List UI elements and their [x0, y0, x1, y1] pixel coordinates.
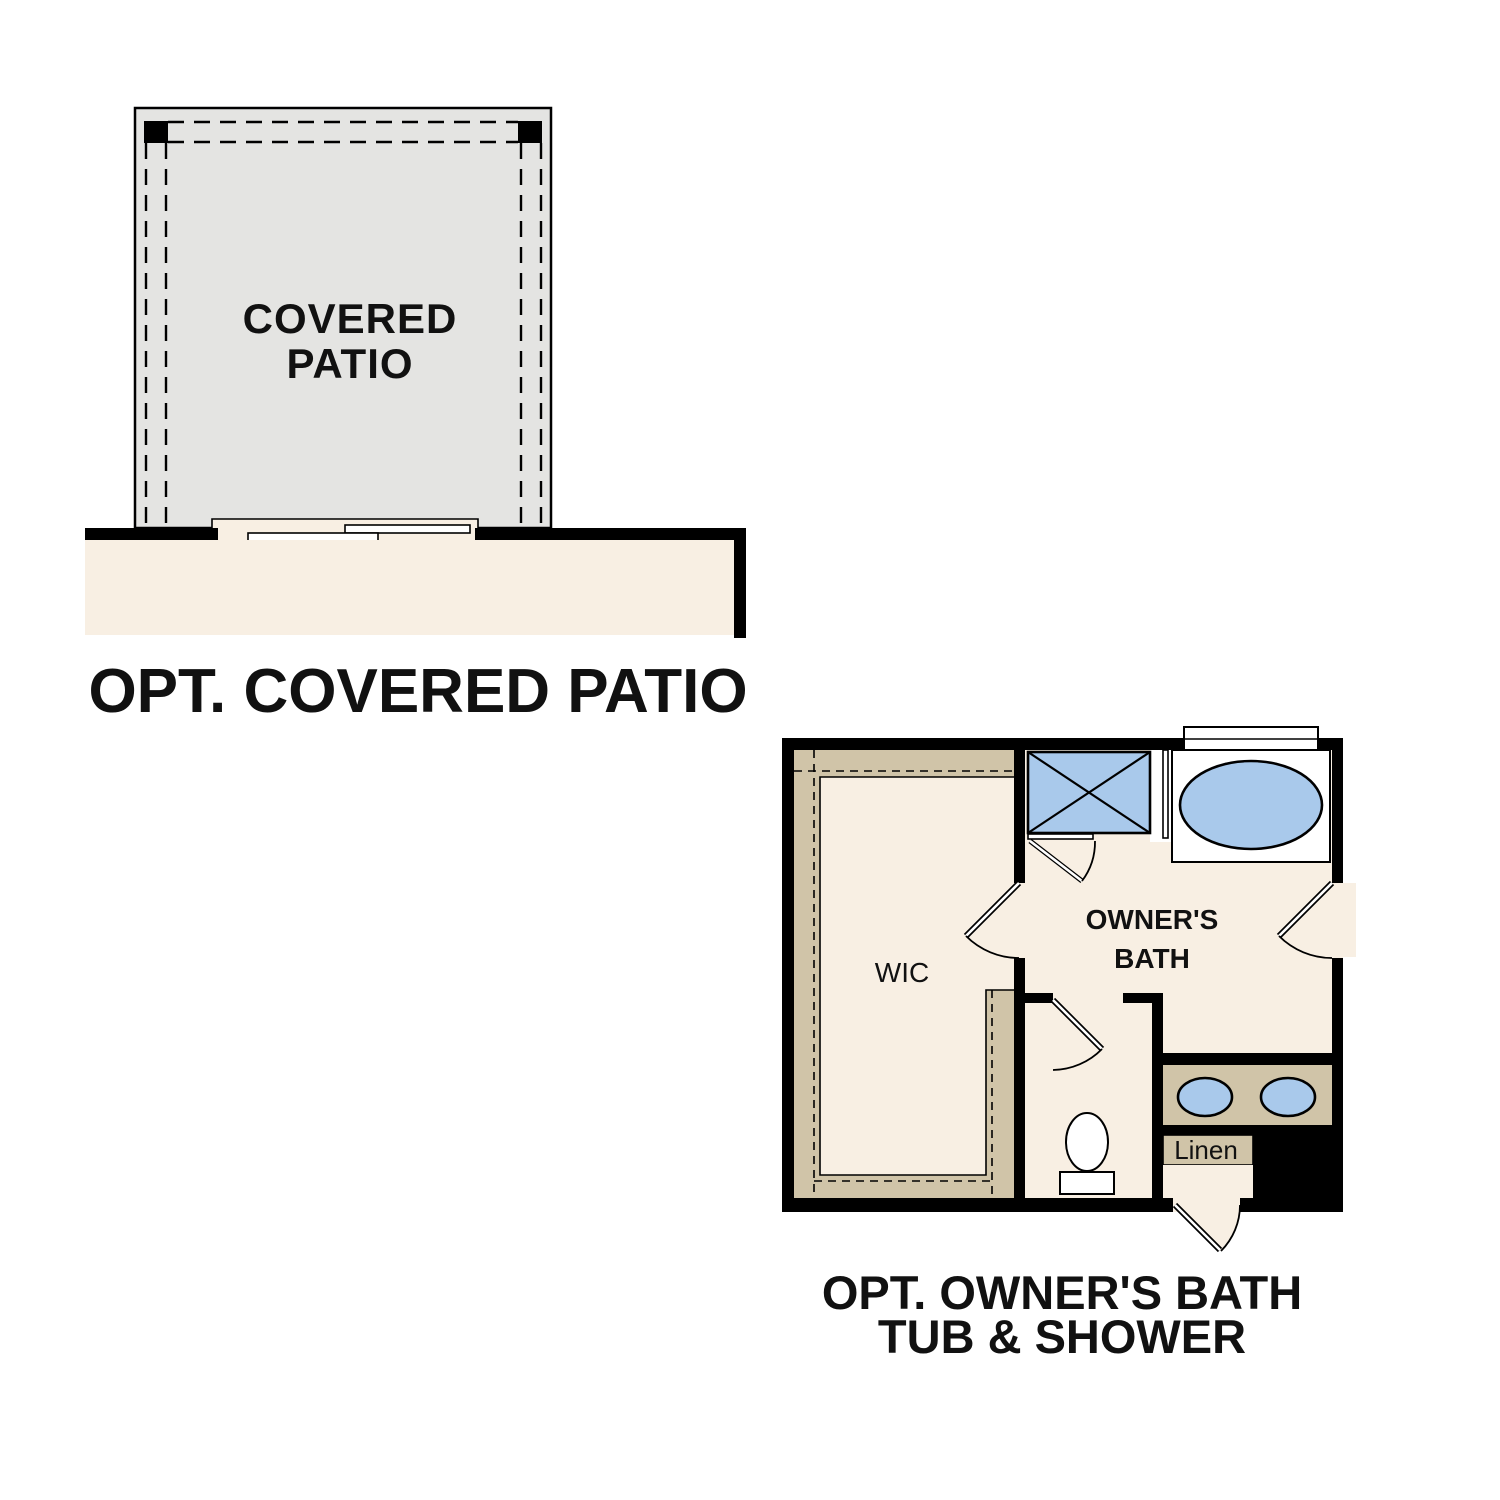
- wic-shelf-band-left: [794, 750, 820, 1198]
- linen-label: Linen: [1174, 1135, 1238, 1165]
- sliding-door-panel: [248, 533, 378, 541]
- patio-post: [518, 121, 542, 143]
- patio-room-label-line2: PATIO: [286, 340, 413, 387]
- bath-room-label-line1: OWNER'S: [1086, 904, 1219, 935]
- floorplan-canvas: COVERED PATIO OPT. COVERED PATIO: [0, 0, 1500, 1500]
- wic-shelf-band-bottom: [794, 1175, 1015, 1198]
- floorplan-sheet: COVERED PATIO OPT. COVERED PATIO: [0, 0, 1500, 1500]
- owners-bath-plan: WIC OWNER'S BATH Linen OPT. OWNER'S BATH…: [782, 727, 1356, 1363]
- wall-toilet-right: [1152, 993, 1163, 1198]
- wall-bottom: [782, 1198, 1173, 1212]
- wall-wic-bath-upper: [1014, 750, 1025, 883]
- wall-mass-bottom-right: [1253, 1135, 1343, 1212]
- wall-right-upper: [1332, 738, 1343, 883]
- toilet-tank: [1060, 1172, 1114, 1194]
- wall-toilet-top-left: [1025, 993, 1053, 1003]
- wall-wic-bath-lower: [1014, 958, 1025, 1198]
- wall-bottom-stub: [1240, 1198, 1253, 1212]
- wall-right-lower: [1332, 958, 1343, 1053]
- patio-room-label-line1: COVERED: [243, 295, 458, 342]
- shower-partition-wall: [1163, 750, 1168, 838]
- vanity-backwall-band: [1163, 1053, 1343, 1065]
- bath-plan-title-line2: TUB & SHOWER: [878, 1310, 1246, 1363]
- sliding-door-panel: [345, 525, 470, 533]
- bathtub: [1180, 761, 1322, 849]
- sink: [1261, 1078, 1315, 1116]
- wall-toilet-top-right: [1123, 993, 1152, 1003]
- wic-shelf-band-right: [986, 990, 1015, 1198]
- vanity-frontwall-band: [1163, 1125, 1343, 1135]
- wall-left: [782, 738, 794, 1212]
- toilet-bowl: [1066, 1113, 1108, 1171]
- bath-room-label-line2: BATH: [1114, 943, 1190, 974]
- wall-right-vanity: [1332, 1053, 1343, 1135]
- linen-closet-floor: [1163, 1165, 1253, 1205]
- house-wall: [85, 528, 218, 540]
- wic-shelf-band-top: [794, 750, 1015, 777]
- covered-patio-plan: COVERED PATIO OPT. COVERED PATIO: [85, 108, 748, 726]
- sink: [1178, 1078, 1232, 1116]
- wic-label: WIC: [875, 957, 929, 988]
- house-interior-floor: [85, 540, 734, 635]
- patio-post: [144, 121, 168, 143]
- entry-threshold: [1343, 883, 1356, 957]
- patio-plan-title: OPT. COVERED PATIO: [88, 657, 747, 726]
- house-wall: [475, 528, 746, 540]
- house-wall: [734, 528, 746, 638]
- shower-curb: [1028, 834, 1093, 839]
